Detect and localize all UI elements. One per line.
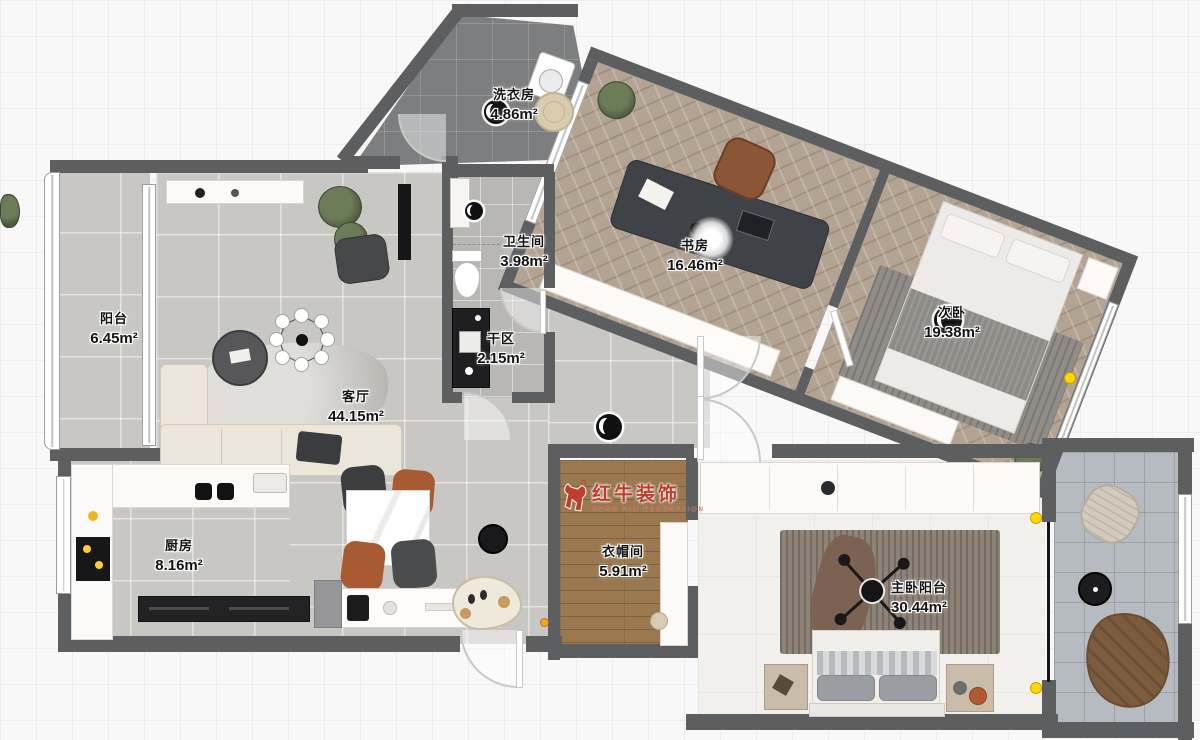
- room-name: 客厅: [328, 386, 384, 405]
- master-double-door-arc[interactable]: [697, 398, 761, 462]
- light-point-marker: [540, 618, 549, 627]
- paper: [638, 179, 674, 210]
- balcony-divider-window: [142, 184, 156, 446]
- wardrobe[interactable]: [700, 462, 1040, 514]
- nightstand[interactable]: [946, 664, 994, 712]
- room-label-master-suite: 主卧阳台 30.44m²: [891, 577, 947, 616]
- room-area: 3.98m²: [500, 253, 548, 270]
- room-label-study: 书房 16.46m²: [667, 235, 723, 274]
- bathroom-vanity[interactable]: [450, 178, 470, 228]
- kitchen-counter-left[interactable]: [71, 464, 113, 640]
- light-point-marker: [1064, 372, 1076, 384]
- cooktop: [217, 483, 234, 500]
- sliding-door-track: [1047, 522, 1050, 682]
- room-name: 衣帽间: [599, 541, 647, 560]
- balcony-window: [44, 172, 60, 450]
- lounge-chair[interactable]: [333, 233, 391, 286]
- toilet[interactable]: [452, 250, 482, 262]
- laptop: [736, 210, 775, 241]
- master-double-door[interactable]: [697, 336, 704, 400]
- master-balcony-window: [1178, 494, 1192, 624]
- nightstand[interactable]: [764, 664, 808, 710]
- room-name: 厨房: [155, 535, 203, 554]
- console-table[interactable]: [166, 180, 304, 204]
- room-area: 4.86m²: [490, 106, 538, 123]
- kitchen-window: [56, 476, 71, 594]
- sofa-cushion: [296, 431, 343, 465]
- pillow: [879, 675, 937, 701]
- watermark: 红牛装饰 HONG NIU DECORATION: [560, 479, 705, 513]
- room-name: 干区: [477, 328, 525, 347]
- round-side-table[interactable]: [1078, 572, 1112, 606]
- room-label-balcony: 阳台 6.45m²: [90, 308, 138, 347]
- kitchen-counter-top[interactable]: [112, 464, 290, 508]
- bull-logo-icon: [560, 479, 588, 513]
- room-area: 2.15m²: [477, 350, 525, 367]
- master-double-door[interactable]: [697, 396, 704, 460]
- ceiling-lamp-icon[interactable]: [465, 202, 483, 220]
- room-name: 卫生间: [500, 231, 548, 250]
- room-name: 次卧: [924, 302, 980, 321]
- room-name: 洗衣房: [490, 84, 538, 103]
- bed-blanket: [817, 651, 937, 675]
- light-point-marker: [1030, 512, 1042, 524]
- room-area: 19.38m²: [924, 324, 980, 341]
- floor-plan: 洗衣房 4.86m² 卫生间 3.98m² 干区 2.15m² 书房 16.46…: [0, 0, 1200, 740]
- round-jute-rug[interactable]: [534, 92, 574, 132]
- watermark-subtitle: HONG NIU DECORATION: [592, 507, 705, 513]
- room-area: 6.45m²: [90, 330, 138, 347]
- kitchen-sink: [253, 473, 287, 493]
- room-area: 30.44m²: [891, 599, 947, 616]
- master-bed[interactable]: [812, 630, 940, 716]
- entry-door-arc[interactable]: [460, 630, 518, 688]
- room-label-bathroom: 卫生间 3.98m²: [500, 231, 548, 270]
- plant: [0, 194, 20, 228]
- pillow: [817, 675, 875, 701]
- ceiling-lamp-icon[interactable]: [596, 414, 622, 440]
- room-label-laundry: 洗衣房 4.86m²: [490, 84, 538, 123]
- entry-door[interactable]: [516, 630, 523, 688]
- side-table[interactable]: [478, 524, 508, 554]
- room-name: 书房: [667, 235, 723, 254]
- chandelier-icon[interactable]: [272, 310, 330, 368]
- room-name: 阳台: [90, 308, 138, 327]
- room-area: 16.46m²: [667, 257, 723, 274]
- dining-chair[interactable]: [339, 540, 387, 593]
- room-label-kitchen: 厨房 8.16m²: [155, 535, 203, 574]
- coffee-machine: [347, 595, 369, 621]
- watermark-name: 红牛装饰: [592, 484, 680, 505]
- light-point-marker: [1030, 682, 1042, 694]
- coffee-table[interactable]: [212, 330, 268, 386]
- room-label-living-room: 客厅 44.15m²: [328, 386, 384, 425]
- room-area: 44.15m²: [328, 408, 384, 425]
- master-double-door-arc[interactable]: [697, 336, 761, 400]
- room-area: 5.91m²: [599, 563, 647, 580]
- cloakroom-stool[interactable]: [650, 612, 668, 630]
- room-area: 8.16m²: [155, 557, 203, 574]
- shoe-bench[interactable]: [314, 580, 342, 628]
- feature-wall: [398, 184, 411, 260]
- room-label-second-bedroom: 次卧 19.38m²: [924, 302, 980, 341]
- room-label-cloakroom: 衣帽间 5.91m²: [599, 541, 647, 580]
- room-label-dry-area: 干区 2.15m²: [477, 328, 525, 367]
- kitchen-cabinet-dark[interactable]: [138, 596, 310, 622]
- cooktop: [195, 483, 212, 500]
- bathroom-door[interactable]: [540, 290, 546, 334]
- room-name: 主卧阳台: [891, 577, 947, 596]
- plate: [969, 687, 987, 705]
- dining-chair[interactable]: [390, 538, 438, 590]
- headboard: [809, 703, 945, 717]
- stove: [76, 537, 110, 581]
